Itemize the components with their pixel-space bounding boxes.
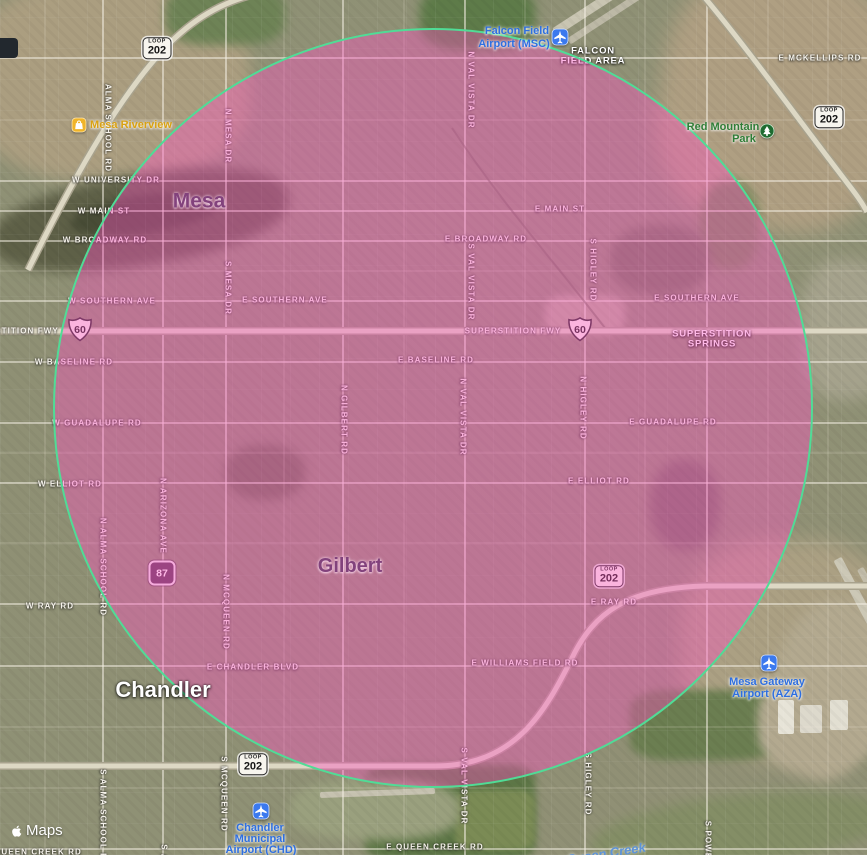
red-mountain-park-label-line-1[interactable]: Red Mountain xyxy=(687,121,760,133)
red-mountain-park-label-line-2[interactable]: Park xyxy=(732,133,756,145)
mesa-riverview-shopping-bag-icon[interactable] xyxy=(72,118,87,133)
falcon-field-airport-label-line-1[interactable]: Falcon Field xyxy=(485,25,549,37)
mesa-riverview-label-line-1[interactable]: Mesa Riverview xyxy=(90,119,172,131)
attribution-label: Maps xyxy=(26,822,63,839)
apple-logo-icon xyxy=(10,823,24,839)
chandler-municipal-airport-label-line-3[interactable]: Airport (CHD) xyxy=(226,844,297,855)
falcon-field-airport-label-line-2[interactable]: Airport (MSC) xyxy=(478,38,550,50)
mesa-gateway-airport-label-line-2[interactable]: Airport (AZA) xyxy=(732,688,802,700)
chandler-municipal-airport-airplane-icon[interactable] xyxy=(253,803,270,820)
mesa-gateway-airport-label-line-1[interactable]: Mesa Gateway xyxy=(729,676,805,688)
water-label-queen-creek: Queen Creek xyxy=(565,841,646,855)
city-label-chandler: Chandler xyxy=(115,678,210,702)
city-label-gilbert: Gilbert xyxy=(318,555,382,577)
city-label-mesa: Mesa xyxy=(173,189,226,212)
map-canvas[interactable]: E MCKELLIPS RDW UNIVERSITY DRW MAIN STE … xyxy=(0,0,867,855)
map-labels-over-overlay: MesaGilbertChandlerMesa RiverviewFalcon … xyxy=(0,0,867,855)
apple-maps-attribution: Maps xyxy=(10,822,63,839)
falcon-field-airport-airplane-icon[interactable] xyxy=(552,29,569,46)
mesa-gateway-airport-airplane-icon[interactable] xyxy=(761,655,778,672)
red-mountain-park-tree-icon[interactable] xyxy=(760,124,775,139)
